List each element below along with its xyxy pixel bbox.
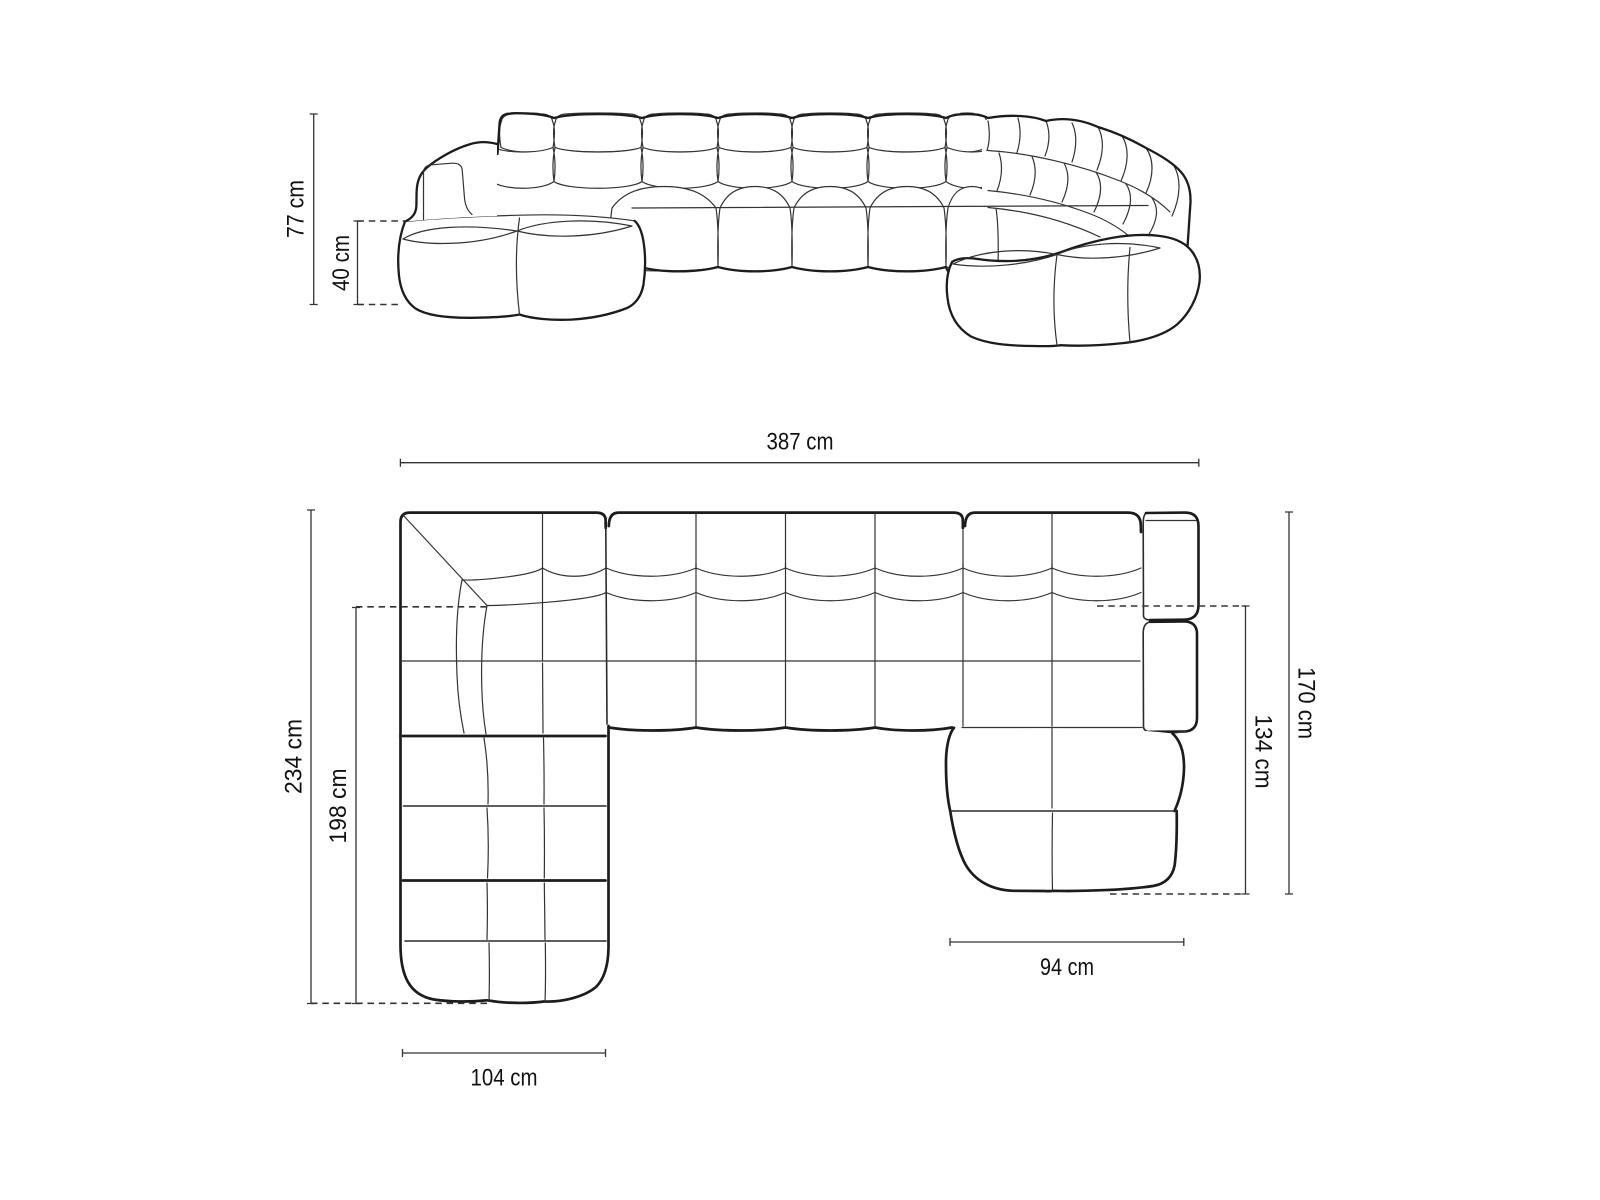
svg-text:170 cm: 170 cm (1293, 667, 1320, 739)
svg-text:387 cm: 387 cm (767, 429, 834, 456)
svg-text:77 cm: 77 cm (283, 180, 310, 238)
svg-text:104 cm: 104 cm (471, 1065, 538, 1092)
svg-text:40 cm: 40 cm (328, 235, 355, 291)
svg-text:134 cm: 134 cm (1250, 715, 1277, 789)
svg-text:198 cm: 198 cm (325, 769, 352, 844)
svg-text:234 cm: 234 cm (281, 719, 308, 794)
svg-text:94 cm: 94 cm (1040, 954, 1094, 981)
